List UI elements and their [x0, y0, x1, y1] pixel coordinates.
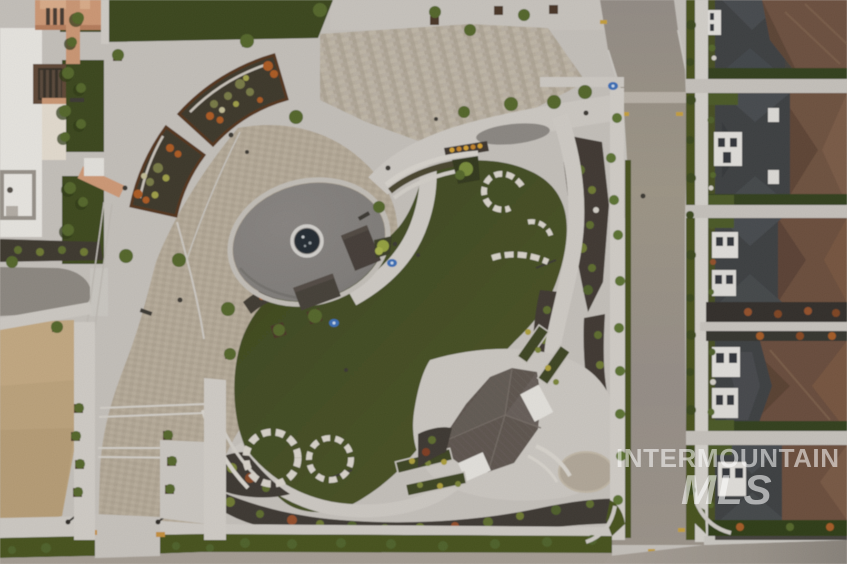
svg-text:MLS: MLS	[681, 466, 773, 513]
